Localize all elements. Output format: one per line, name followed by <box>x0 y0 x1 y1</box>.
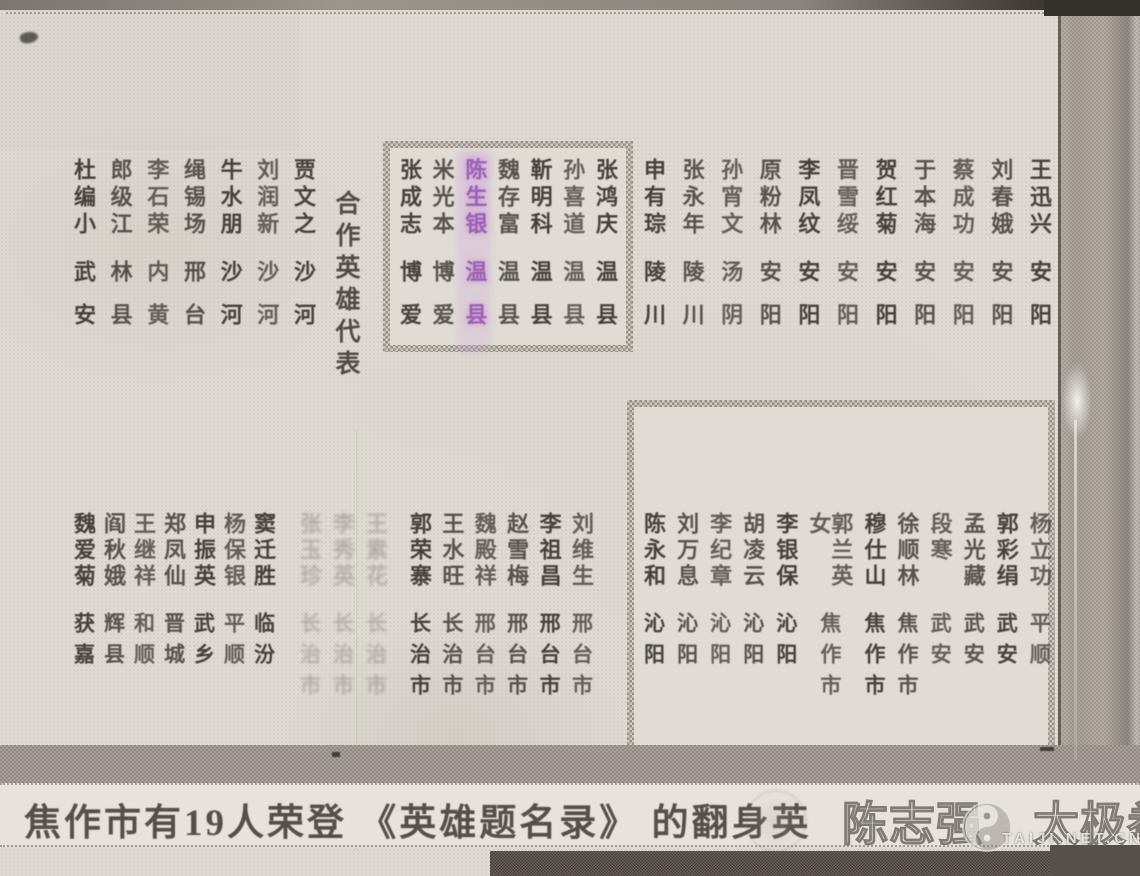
place-name: 沁阳 <box>676 612 697 674</box>
person-name: 李银保 <box>774 512 796 612</box>
scan-top-edge-band <box>0 0 1140 10</box>
name-column: 绳锡场邢台 <box>182 158 204 346</box>
place-name: 辉县 <box>103 612 124 674</box>
person-name: 绳锡场 <box>182 158 204 260</box>
place-name: 武安 <box>995 612 1016 674</box>
place-name: 安阳 <box>989 260 1011 346</box>
name-column: 申有琮陵川 <box>642 158 664 346</box>
place-name: 武安 <box>962 612 983 674</box>
caption-text: 焦作市有19人荣登 《英雄题名录》 的翻身英 <box>24 792 812 846</box>
name-columns-bottom-left: 魏爱菊获嘉阎秋娥辉县王继祥和顺郑凤仙晋城申振英武乡杨保银平顺窦迁胜临汾 <box>72 512 274 674</box>
place-name: 焦作市 <box>896 612 917 705</box>
page-title-vertical: 合作英雄代表 <box>327 190 363 382</box>
place-name: 沙河 <box>255 260 277 346</box>
name-column: 李凤纹安阳 <box>796 158 818 346</box>
person-name: 魏殿祥 <box>473 512 495 612</box>
person-name: 郭荣寨 <box>408 512 430 612</box>
name-column: 赵雪梅邢台市 <box>505 512 527 705</box>
place-name: 焦作市 <box>863 612 884 705</box>
name-column: 孙喜道温县 <box>561 158 583 346</box>
ink-smudge-mark <box>19 30 39 45</box>
name-column: 杜编小武安 <box>72 158 94 346</box>
person-name: 贺红菊 <box>874 158 896 260</box>
name-column: 杨立功平顺 <box>1028 512 1050 705</box>
place-name: 武安 <box>72 260 94 346</box>
name-column: 窦迁胜临汾 <box>252 512 274 674</box>
name-column: 魏爱菊获嘉 <box>72 512 94 674</box>
place-name: 焦作市 <box>819 612 840 705</box>
person-name: 魏存富 <box>496 158 518 260</box>
person-name: 郭兰英女 <box>807 512 851 612</box>
place-name: 温县 <box>496 260 518 346</box>
name-column: 于本海安阳 <box>912 158 934 346</box>
place-name: 邢台市 <box>538 612 559 705</box>
place-name: 邢台 <box>182 260 204 346</box>
person-name: 郎级江 <box>109 158 131 260</box>
place-name: 安阳 <box>796 260 818 346</box>
name-column: 孙宵文汤阴 <box>719 158 741 346</box>
paper-fold-streak <box>1074 420 1077 760</box>
place-name: 沙河 <box>292 260 314 346</box>
name-column: 孟光藏武安 <box>962 512 984 705</box>
person-name: 刘维生 <box>570 512 592 612</box>
place-name: 内黄 <box>145 260 167 346</box>
dotted-border-top <box>6 12 1132 14</box>
place-name: 陵川 <box>642 260 664 346</box>
name-column: 王继祥和顺 <box>132 512 154 674</box>
name-column: 王素花长治市 <box>364 512 386 705</box>
person-name: 靳明科 <box>529 158 551 260</box>
watermark: 陈志强太极拳 TAIJI.NET.CN <box>842 782 1140 862</box>
name-columns-bottom-faded: 张玉珍长治市李秀英长治市王素花长治市 <box>298 512 386 705</box>
name-column: 李银保沁阳 <box>774 512 796 705</box>
name-column: 牛水朋沙河 <box>219 158 241 346</box>
name-columns-top-left: 杜编小武安郎级江林县李石荣内黄绳锡场邢台牛水朋沙河刘润新沙河贾文之沙河 <box>72 158 314 346</box>
person-name: 张鸿庆 <box>594 158 616 260</box>
place-name: 临汾 <box>253 612 274 674</box>
name-column: 刘润新沙河 <box>255 158 277 346</box>
person-name: 阎秋娥 <box>102 512 124 612</box>
scan-corner-dark <box>1044 0 1140 16</box>
paper-fold-highlight <box>1062 362 1092 440</box>
person-name: 孙喜道 <box>561 158 583 260</box>
place-name: 武安 <box>929 612 950 674</box>
place-name: 安阳 <box>1028 260 1050 346</box>
watermark-site-text: TAIJI.NET.CN <box>1002 830 1140 847</box>
person-name: 李纪章 <box>708 512 730 612</box>
name-column: 张成志博爱 <box>398 158 420 346</box>
person-name: 郭彩绢 <box>995 512 1017 612</box>
person-name: 赵雪梅 <box>505 512 527 612</box>
place-name: 沙河 <box>219 260 241 346</box>
name-column-highlighted: 陈生银温县 <box>463 158 485 346</box>
person-name: 张永年 <box>681 158 703 260</box>
place-name: 温县 <box>561 260 583 346</box>
name-column: 郭荣寨长治市 <box>408 512 430 705</box>
name-columns-bottom-mid: 郭荣寨长治市王水旺长治市魏殿祥邢台市赵雪梅邢台市李祖昌邢台市刘维生邢台市 <box>408 512 592 705</box>
name-column: 张玉珍长治市 <box>298 512 320 705</box>
name-column: 李石荣内黄 <box>145 158 167 346</box>
person-name: 贾文之 <box>292 158 314 260</box>
person-name: 刘万息 <box>675 512 697 612</box>
name-columns-top-box: 张成志博爱米光本博爱陈生银温县魏存富温县靳明科温县孙喜道温县张鸿庆温县 <box>398 158 616 346</box>
name-column: 刘维生邢台市 <box>570 512 592 705</box>
place-name: 邢台市 <box>473 612 494 705</box>
scan-grain-overlay <box>0 0 300 150</box>
person-name: 李祖昌 <box>538 512 560 612</box>
person-name: 陈永和 <box>642 512 664 612</box>
person-name: 李秀英 <box>331 512 353 612</box>
name-column: 米光本博爱 <box>431 158 453 346</box>
faint-stamp-circle <box>745 790 807 852</box>
person-name: 原粉林 <box>758 158 780 260</box>
place-name: 平顺 <box>1028 612 1049 674</box>
person-name: 孙宵文 <box>719 158 741 260</box>
person-name: 申有琮 <box>642 158 664 260</box>
name-column: 杨保银平顺 <box>222 512 244 674</box>
name-column: 李秀英长治市 <box>331 512 353 705</box>
person-name: 米光本 <box>431 158 453 260</box>
person-name: 张玉珍 <box>298 512 320 612</box>
place-name: 温县 <box>529 260 551 346</box>
person-name: 蔡成功 <box>951 158 973 260</box>
name-column: 申振英武乡 <box>192 512 214 674</box>
name-column: 蔡成功安阳 <box>951 158 973 346</box>
person-name: 徐顺林 <box>896 512 918 612</box>
place-name: 沁阳 <box>709 612 730 674</box>
person-name: 王继祥 <box>132 512 154 612</box>
ink-dash-mark <box>332 752 340 757</box>
name-column: 李纪章沁阳 <box>708 512 730 705</box>
name-column: 陈永和沁阳 <box>642 512 664 705</box>
place-name: 安阳 <box>912 260 934 346</box>
person-name: 于本海 <box>912 158 934 260</box>
scanned-document-page: 合作英雄代表 杜编小武安郎级江林县李石荣内黄绳锡场邢台牛水朋沙河刘润新沙河贾文之… <box>0 0 1140 876</box>
name-column: 魏存富温县 <box>496 158 518 346</box>
place-name: 安阳 <box>835 260 857 346</box>
person-name: 刘润新 <box>255 158 277 260</box>
place-name: 温县 <box>463 260 485 346</box>
person-name: 胡凌云 <box>741 512 763 612</box>
name-column: 胡凌云沁阳 <box>741 512 763 705</box>
person-name: 申振英 <box>192 512 214 612</box>
place-name: 安阳 <box>758 260 780 346</box>
person-name: 牛水朋 <box>219 158 241 260</box>
name-column: 王迅兴安阳 <box>1028 158 1050 346</box>
name-column: 徐顺林焦作市 <box>896 512 918 705</box>
place-name: 安阳 <box>951 260 973 346</box>
name-column: 郭兰英女焦作市 <box>807 512 851 705</box>
name-columns-top-right: 申有琮陵川张永年陵川孙宵文汤阴原粉林安阳李凤纹安阳晋雪绥安阳贺红菊安阳于本海安阳… <box>642 158 1050 346</box>
place-name: 和顺 <box>133 612 154 674</box>
person-name: 杨保银 <box>222 512 244 612</box>
place-name: 沁阳 <box>742 612 763 674</box>
place-name: 获嘉 <box>73 612 94 674</box>
place-name: 长治市 <box>299 612 320 705</box>
name-column: 贾文之沙河 <box>292 158 314 346</box>
place-name: 博爱 <box>398 260 420 346</box>
name-column: 刘万息沁阳 <box>675 512 697 705</box>
place-name: 长治市 <box>332 612 353 705</box>
person-name: 王素花 <box>364 512 386 612</box>
place-name: 平顺 <box>223 612 244 674</box>
name-column: 穆仕山焦作市 <box>862 512 884 705</box>
place-name: 安阳 <box>874 260 896 346</box>
person-name: 窦迁胜 <box>252 512 274 612</box>
name-column: 段寒武安 <box>929 512 951 705</box>
name-column: 原粉林安阳 <box>758 158 780 346</box>
person-name: 王迅兴 <box>1028 158 1050 260</box>
place-name: 邢台市 <box>506 612 527 705</box>
person-name: 郑凤仙 <box>162 512 184 612</box>
place-name: 沁阳 <box>775 612 796 674</box>
place-name: 沁阳 <box>643 612 664 674</box>
person-name: 杨立功 <box>1028 512 1050 612</box>
name-columns-bottom-box: 陈永和沁阳刘万息沁阳李纪章沁阳胡凌云沁阳李银保沁阳郭兰英女焦作市穆仕山焦作市徐顺… <box>642 512 1050 705</box>
name-column: 郑凤仙晋城 <box>162 512 184 674</box>
person-name: 刘春娥 <box>989 158 1011 260</box>
person-name: 李凤纹 <box>796 158 818 260</box>
name-column: 郭彩绢武安 <box>995 512 1017 705</box>
person-name: 杜编小 <box>72 158 94 260</box>
person-name: 张成志 <box>398 158 420 260</box>
halftone-band <box>0 745 1140 783</box>
name-column: 张永年陵川 <box>681 158 703 346</box>
place-name: 陵川 <box>681 260 703 346</box>
name-column: 晋雪绥安阳 <box>835 158 857 346</box>
name-column: 李祖昌邢台市 <box>538 512 560 705</box>
person-name: 孟光藏 <box>962 512 984 612</box>
name-column: 王水旺长治市 <box>440 512 462 705</box>
person-name: 段寒 <box>929 512 951 612</box>
place-name: 邢台市 <box>570 612 591 705</box>
person-name: 陈生银 <box>463 158 485 260</box>
place-name: 晋城 <box>163 612 184 674</box>
name-column: 靳明科温县 <box>529 158 551 346</box>
place-name: 长治市 <box>441 612 462 705</box>
place-name: 汤阴 <box>719 260 741 346</box>
name-column: 魏殿祥邢台市 <box>473 512 495 705</box>
place-name: 林县 <box>109 260 131 346</box>
place-name: 长治市 <box>365 612 386 705</box>
name-column: 郎级江林县 <box>109 158 131 346</box>
name-column: 张鸿庆温县 <box>594 158 616 346</box>
person-name: 穆仕山 <box>862 512 884 612</box>
name-column: 阎秋娥辉县 <box>102 512 124 674</box>
name-column: 刘春娥安阳 <box>989 158 1011 346</box>
place-name: 长治市 <box>409 612 430 705</box>
ink-dash-mark <box>1040 747 1054 751</box>
person-name: 魏爱菊 <box>72 512 94 612</box>
name-column: 贺红菊安阳 <box>874 158 896 346</box>
place-name: 博爱 <box>431 260 453 346</box>
person-name: 晋雪绥 <box>835 158 857 260</box>
place-name: 武乡 <box>193 612 214 674</box>
place-name: 温县 <box>594 260 616 346</box>
person-name: 李石荣 <box>145 158 167 260</box>
person-name: 王水旺 <box>440 512 462 612</box>
